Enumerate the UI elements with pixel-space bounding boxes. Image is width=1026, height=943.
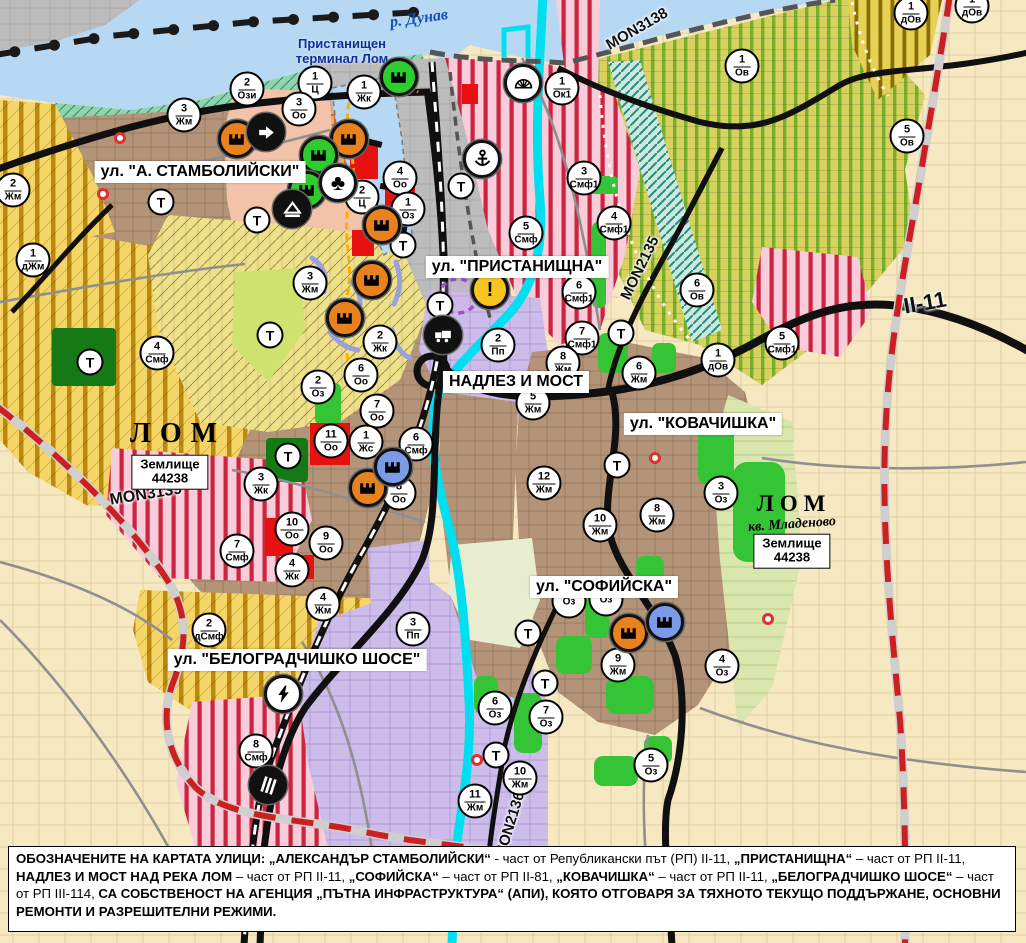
zone-marker: 6Ов [680,273,715,308]
zone-marker: 4Оо [383,161,418,196]
zone-number: 3 [253,472,269,485]
zone-number: 3 [291,97,307,110]
legend-text-segment: НАДЛЕЗ И МОСТ НАД РЕКА ЛОМ [16,869,232,884]
zone-code: Оз [540,718,553,729]
truck-icon [424,316,462,354]
zone-number: 3 [405,617,421,630]
zone-code: дОв [901,14,921,25]
zone-marker: 5Смф1 [765,326,800,361]
zone-code: Ов [690,291,704,302]
zone-marker: 5Смф [509,216,544,251]
mountain-icon [273,190,311,228]
zone-code: Жк [373,343,387,354]
zone-number: 4 [149,341,165,354]
zone-number: 1 [358,430,374,443]
transport-t-marker: Т [275,443,302,470]
zone-marker: 10Оо [275,512,310,547]
anchor-icon [463,140,501,178]
zone-number: 6 [689,278,705,291]
zone-code: Ц [311,84,318,95]
zone-code: Оо [285,530,299,541]
street-sign-label: НАДЛЕЗ И МОСТ [443,371,589,393]
zone-code: Оо [324,442,338,453]
zone-code: Жм [467,802,483,813]
zone-marker: 6Смф1 [562,275,597,310]
zone-code: Жм [302,284,318,295]
zone-code: дОв [962,7,982,18]
zone-marker: 4Жм [306,587,341,622]
zone-number: 6 [487,696,503,709]
zone-number: 6 [408,432,424,445]
zone-code: Оз [312,388,325,399]
zone-number: 1 [25,248,41,261]
legend-text-segment: – част от РП II-81, [439,869,557,884]
factory-icon [380,58,418,96]
zone-code: Смф1 [600,224,629,235]
zone-code: Оо [292,110,306,121]
legend-text-segment: - част от Републикански път (РП) II-11, [491,851,734,866]
zone-code: Смф [514,234,537,245]
zone-number: 1 [400,197,416,210]
zone-marker: 1дЖм [16,243,51,278]
zone-number: 5 [518,221,534,234]
zone-marker: 1дОв [701,343,736,378]
legend-text-segment: СА СОБСТВЕНОСТ НА АГЕНЦИЯ „ПЪТНА ИНФРАСТ… [16,886,1001,919]
zone-number: 2 [5,178,21,191]
zone-number: 10 [509,766,531,779]
zone-code: Жм [631,374,647,385]
zone-marker: 1Ов [725,49,760,84]
zone-number: 4 [606,211,622,224]
zone-number: 2 [201,618,217,631]
zone-marker: 4Жк [275,553,310,588]
transport-t-marker: Т [427,292,454,319]
city-lom-mladenovo-label: ЛОМ [757,491,832,517]
zone-marker: 7Смф [220,534,255,569]
factory-icon [326,299,364,337]
zone-number: 7 [369,399,385,412]
zone-number: 2 [372,330,388,343]
zone-marker: 3Жм [167,98,202,133]
zone-number: 8 [248,739,264,752]
zone-marker: 7Оо [360,394,395,429]
zone-marker: 8Жм [640,498,675,533]
transport-t-marker: Т [483,742,510,769]
zone-code: Оз [563,597,576,608]
zone-code: Жм [5,191,21,202]
zone-number: 1 [903,1,919,14]
zone-marker: 3Смф1 [567,161,602,196]
map-screenshot: ОБОЗНАЧЕНИТЕ НА КАРТАТА УЛИЦИ: „АЛЕКСАНД… [0,0,1026,943]
zone-code: Оо [319,544,333,555]
zone-code: Ов [900,137,914,148]
arrow-icon [247,113,285,151]
zone-code: Оз [716,667,729,678]
zone-number: 2 [490,333,506,346]
zone-code: Смф [145,354,168,365]
transport-t-marker: Т [148,189,175,216]
port-terminal-label: Пристанищен терминал Лом [296,36,388,66]
zone-marker: 9Оо [309,526,344,561]
zone-number: 11 [464,789,486,802]
street-sign-label: ул. "ПРИСТАНИЩНА" [426,256,609,278]
zone-marker: 5Оз [634,748,669,783]
zone-number: 4 [392,166,408,179]
zone-code: Ок1 [553,89,571,100]
zone-number: 7 [229,539,245,552]
zone-marker: 4Оз [705,649,740,684]
transport-t-marker: Т [532,670,559,697]
zone-number: 1 [307,71,323,84]
zone-code: Жм [592,526,608,537]
zone-code: Жм [512,779,528,790]
zone-marker: 4Смф1 [597,206,632,241]
zone-marker: 6Оз [478,691,513,726]
zone-code: Оо [354,376,368,387]
zone-number: 3 [302,271,318,284]
zone-number: 6 [353,363,369,376]
legend-note: ОБОЗНАЧЕНИТЕ НА КАРТАТА УЛИЦИ: „АЛЕКСАНД… [8,846,1016,932]
zone-code: Жм [610,666,626,677]
zone-code: Жс [359,443,374,454]
legend-text-segment: „КОВАЧИШКА“ [556,869,654,884]
legend-text-segment: „БЕЛОГРАДЧИШКО ШОСЕ“ [771,869,952,884]
factory-icon [374,448,412,486]
legend-text-segment: ОБОЗНАЧЕНИТЕ НА КАРТАТА УЛИЦИ: „АЛЕКСАНД… [16,851,491,866]
zone-code: Оз [489,709,502,720]
zone-code: Пп [406,630,419,641]
zone-marker: 6Жм [622,356,657,391]
land-parcel-box: Землище44238 [753,534,830,569]
zone-code: Жм [649,516,665,527]
zone-number: 6 [571,280,587,293]
zone-marker: 1Жк [347,75,382,110]
zone-code: Оо [392,494,406,505]
transport-t-marker: Т [244,207,271,234]
poi-dot-icon [649,452,661,464]
zone-code: Жм [525,404,541,415]
zone-marker: 2дСмф [192,613,227,648]
zone-marker: 2Пп [481,328,516,363]
zone-number: 12 [533,471,555,484]
zone-number: 2 [239,77,255,90]
zone-code: Жк [285,571,299,582]
transport-t-marker: Т [448,173,475,200]
transport-t-marker: Т [257,322,284,349]
land-box-title: Землище [762,537,821,551]
zone-marker: 4Смф [140,336,175,371]
zone-marker: 2Ози [230,72,265,107]
zone-number: 8 [649,503,665,516]
sun-icon [504,64,542,102]
land-box-number: 44238 [762,551,821,565]
zone-code: Смф1 [570,179,599,190]
zone-marker: 2Оз [301,370,336,405]
zone-number: 5 [899,124,915,137]
zone-number: 3 [713,481,729,494]
zone-number: 7 [574,326,590,339]
legend-text-segment: – част от РП II-11, [852,851,965,866]
zone-marker: 3Оо [282,92,317,127]
street-sign-label: ул. "СОФИЙСКА" [530,576,678,598]
factory-icon [353,261,391,299]
land-box-title: Землище [140,458,199,472]
zone-number: 4 [714,654,730,667]
zone-marker: 1Ок1 [545,71,580,106]
transport-t-marker: Т [515,620,542,647]
zone-code: Жм [536,484,552,495]
city-lom-label: ЛОМ [130,418,226,450]
zone-number: 9 [610,653,626,666]
zone-number: 6 [631,361,647,374]
zone-number: 3 [576,166,592,179]
zone-code: Смф1 [565,293,594,304]
zone-marker: 11Жм [458,784,493,819]
zone-number: 4 [315,592,331,605]
zone-number: 5 [643,753,659,766]
zone-code: Оз [402,210,415,221]
land-box-number: 44238 [140,472,199,486]
zone-code: Жк [254,485,268,496]
street-sign-label: ул. "БЕЛОГРАДЧИШКО ШОСЕ" [168,649,427,671]
lightning-icon [264,675,302,713]
zone-number: 10 [281,517,303,530]
zone-number: 10 [589,513,611,526]
zone-number: 1 [734,54,750,67]
poi-dot-icon [114,132,126,144]
transport-t-marker: Т [77,349,104,376]
zone-number: 9 [318,531,334,544]
zone-marker: 7Оз [529,700,564,735]
zone-marker: 3Жм [293,266,328,301]
street-sign-label: ул. "КОВАЧИШКА" [624,413,782,435]
zone-number: 1 [356,80,372,93]
zone-code: дЖм [22,261,45,272]
zone-marker: 8Смф [239,734,274,769]
zone-marker: 10Жм [503,761,538,796]
zone-code: дСмф [194,631,224,642]
legend-text-segment: – част от РП II-11, [655,869,772,884]
zone-code: Смф [244,752,267,763]
legend-text-segment: „СОФИЙСКА“ [349,869,439,884]
transport-t-marker: Т [604,452,631,479]
zone-code: Смф1 [768,344,797,355]
zone-code: Жм [315,605,331,616]
zone-number: 7 [538,705,554,718]
zone-code: Ози [238,90,257,101]
poi-dot-icon [97,188,109,200]
railway-crossing-icon [249,766,287,804]
zone-marker: 5Ов [890,119,925,154]
poi-dot-icon [471,754,483,766]
legend-text-segment: – част от РП II-11, [232,869,349,884]
factory-icon [646,603,684,641]
zone-code: Ов [735,67,749,78]
zone-code: Оо [370,412,384,423]
land-parcel-box: Землище44238 [131,455,208,490]
zone-number: 11 [320,429,342,442]
street-sign-label: ул. "А. СТАМБОЛИЙСКИ" [95,161,306,183]
zone-code: Ц [358,198,365,209]
zone-number: 3 [176,103,192,116]
zone-marker: 3Оз [704,476,739,511]
factory-icon [610,614,648,652]
zone-number: 1 [554,76,570,89]
legend-text-segment: „ПРИСТАНИЩНА“ [734,851,852,866]
zone-code: Смф [225,552,248,563]
zone-number: 8 [555,351,571,364]
zone-number: 1 [710,348,726,361]
zone-marker: 11Оо [314,424,349,459]
zone-marker: 3Жк [244,467,279,502]
zone-number: 1 [964,0,980,7]
zone-marker: 6Оо [344,358,379,393]
zone-code: Оз [715,494,728,505]
zone-marker: 9Жм [601,648,636,683]
transport-t-marker: Т [608,320,635,347]
zone-marker: 10Жм [583,508,618,543]
zone-code: Жк [357,93,371,104]
zone-number: 4 [284,558,300,571]
zone-marker: 3Пп [396,612,431,647]
zone-number: 2 [310,375,326,388]
zone-code: Оо [393,179,407,190]
zone-code: Пп [491,346,504,357]
zone-code: Жм [176,116,192,127]
factory-icon [363,206,401,244]
zone-marker: 2Жк [363,325,398,360]
zone-code: Оз [645,766,658,777]
zone-code: дОв [708,361,728,372]
zone-marker: 12Жм [527,466,562,501]
club-icon: ♣ [319,164,357,202]
poi-dot-icon [762,613,774,625]
zone-number: 5 [774,331,790,344]
